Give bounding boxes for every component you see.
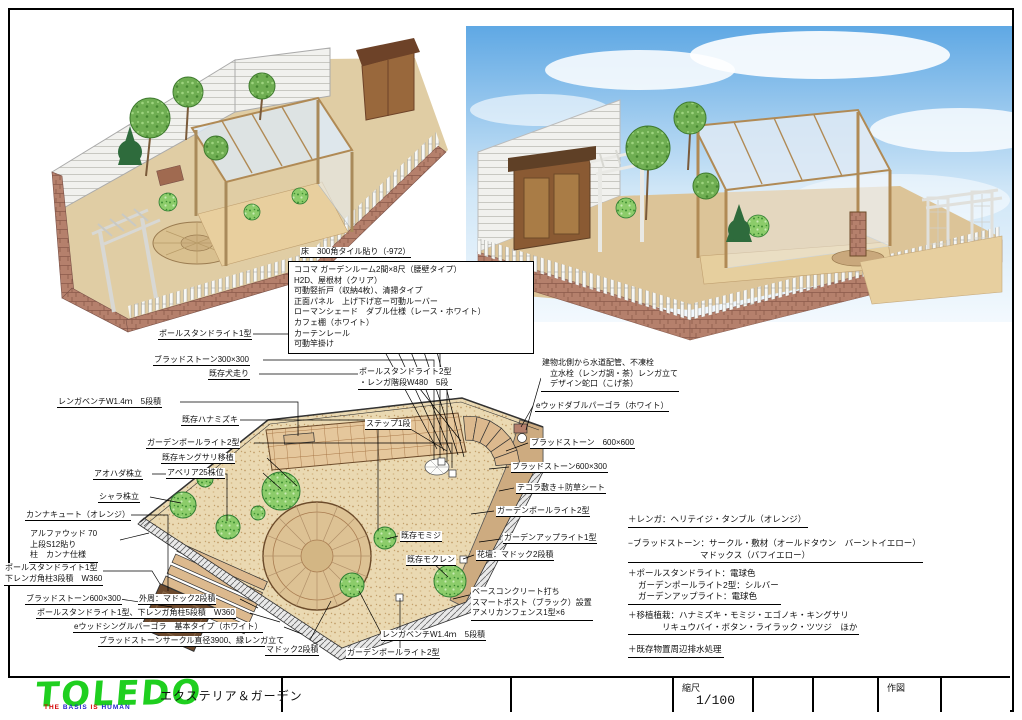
annotation-line: 立水栓（レンガ調・茶）レンガ立て <box>542 369 678 380</box>
annotation-alpha-wood-fence: アルファウッド 70 上段S12貼り 柱 カンナ仕様 <box>29 529 98 563</box>
annotation-pole-stand-light-2: ポールスタンドライト2型 ・レンガ階段W480 5段 <box>358 367 452 390</box>
annotation-existing-maple: 既存モミジ <box>400 531 442 542</box>
annotation-line: 建物北側から水道配管、不凍栓 <box>542 358 678 369</box>
drawn-by-label: 作図 <box>887 681 905 694</box>
titleblock-divider <box>672 678 674 712</box>
annotation-kanna-cute-shed: カンナキュート（オレンジ） <box>25 510 131 521</box>
titleblock-divider <box>752 678 754 712</box>
annotation-madoc-2dan: マドック2段積 <box>265 645 319 656</box>
tagline-word: THE <box>44 704 60 711</box>
annotation-existing-walkway: 既存犬走り <box>208 369 250 380</box>
annotation-bradstone-600x300-b: ブラッドストーン600×300 <box>511 462 608 473</box>
spec-line: カーテンレール <box>294 329 528 340</box>
annotation-madoc-outer: 外周：マドック2段積 <box>138 594 216 605</box>
annotation-bradstone-600x300-a: ブラッドストーン600×300 <box>25 594 122 605</box>
spec-line: ローマンシェード ダブル仕様（レース・ホワイト） <box>294 307 528 318</box>
spec-line: 正面パネル 上げ下げ窓ー可動ルーバー <box>294 297 528 308</box>
annotation-existing-magnolia: 既存モクレン <box>406 555 456 566</box>
annotation-shara-tree: シャラ株立 <box>98 492 140 503</box>
annotation-garden-pole-light-c: ガーデンポールライト2型 <box>496 506 590 517</box>
annotation-pole-stand-light-1: ポールスタンドライト1型 <box>158 329 252 340</box>
titleblock-divider <box>877 678 879 712</box>
annotation-line: アメリカンフェンス1型×6 <box>472 608 592 619</box>
annotation-bradstone-300: ブラッドストーン300×300 <box>153 355 250 366</box>
scale-value: 1/100 <box>696 693 735 708</box>
annotation-gravel-weed-sheet: テコラ敷き＋防草シート <box>516 483 606 494</box>
note-transplanted-plants: ＋移植植栽：ハナミズキ・モミジ・エゴノキ・キングサリ リキュウバイ・ボタン・ライ… <box>628 610 859 635</box>
annotation-garden-pole-light-a: ガーデンポールライト2型 <box>146 438 240 449</box>
annotation-bradstone-600x600: ブラッドストーン 600×600 <box>530 438 635 449</box>
titleblock-divider <box>510 678 512 712</box>
company-subtitle: エクステリア＆ガーデン <box>160 687 303 704</box>
annotation-pole-stand-light-3dan: ポールスタンドライト1型 下レンガ角柱3段積 W360 <box>4 563 103 586</box>
annotation-brick-bench-bottom: レンガベンチW1.4ｍ 5段積 <box>381 630 486 641</box>
annotation-brick-bench-top: レンガベンチW1.4ｍ 5段積 <box>57 397 162 408</box>
note-line: マドックス（バフイエロー） <box>628 550 921 562</box>
spec-line: ココマ ガーデンルーム2間×8尺（腰壁タイプ） <box>294 265 528 276</box>
annotation-double-pergola: eウッドダブルパーゴラ（ホワイト） <box>535 401 669 412</box>
annotation-pole-stand-light-5dan: ポールスタンドライト1型、下レンガ角柱5段積 W360 <box>36 608 236 619</box>
annotation-garden-up-light: ガーデンアップライト1型 <box>503 533 597 544</box>
spec-line: H2D、屋根材（クリア） <box>294 276 528 287</box>
note-line: ガーデンポールライト2型：シルバー <box>628 580 779 592</box>
annotation-line: ・レンガ階段W480 5段 <box>359 378 451 389</box>
tagline-word: BASIS <box>63 704 88 711</box>
note-line: −ブラッドストーン：サークル・敷材（オールドタウン バーントイエロー） <box>628 538 921 550</box>
spec-line: 可動竿掛け <box>294 339 528 350</box>
note-line: ＋ポールスタンドライト：電球色 <box>628 568 779 580</box>
note-drainage: ＋既存物置周辺排水処理 <box>628 644 724 658</box>
note-line: ガーデンアップライト：電球色 <box>628 591 779 603</box>
annotation-floor-tile: 床 300角タイル貼り（-972） <box>300 247 411 258</box>
titleblock-divider <box>940 678 942 712</box>
note-lighting: ＋ポールスタンドライト：電球色 ガーデンポールライト2型：シルバー ガーデンアッ… <box>628 568 781 605</box>
annotation-water-supply: 建物北側から水道配管、不凍栓 立水栓（レンガ調・茶）レンガ立て デザイン蛇口（こ… <box>541 358 679 392</box>
annotation-aohada-tree: アオハダ株立 <box>93 469 143 480</box>
note-bradstone-colors: −ブラッドストーン：サークル・敷材（オールドタウン バーントイエロー） マドック… <box>628 538 923 563</box>
note-line: ＋移植植栽：ハナミズキ・モミジ・エゴノキ・キングサリ <box>628 610 857 622</box>
spec-line: 可動竪折戸（収納4枚）、清掃タイプ <box>294 286 528 297</box>
annotation-single-pergola: eウッドシングルパーゴラ 基本タイプ（ホワイト） <box>73 622 263 633</box>
title-block: TOLEDO THE BASIS IS HUMAN エクステリア＆ガーデン 縮尺… <box>8 676 1010 712</box>
annotation-line: ベースコンクリート打ち <box>472 587 592 598</box>
annotation-line: スマートポスト（ブラック）設置 <box>472 598 592 609</box>
annotation-line: 柱 カンナ仕様 <box>30 550 97 561</box>
annotation-fence-post: ベースコンクリート打ち スマートポスト（ブラック）設置 アメリカンフェンス1型×… <box>471 587 593 621</box>
tagline-word: HUMAN <box>101 704 130 711</box>
annotation-garden-pole-light-b: ガーデンポールライト2型 <box>346 648 440 659</box>
annotation-line: アルファウッド 70 <box>30 529 97 540</box>
company-tagline: THE BASIS IS HUMAN <box>44 704 131 711</box>
annotation-line: 下レンガ角柱3段積 W360 <box>5 574 102 585</box>
annotation-line: ポールスタンドライト1型 <box>5 563 102 574</box>
garden-room-spec-box: ココマ ガーデンルーム2間×8尺（腰壁タイプ） H2D、屋根材（クリア） 可動竪… <box>288 261 534 354</box>
annotation-existing-dogwood: 既存ハナミズキ <box>181 415 239 426</box>
spec-line: カフェ棚（ホワイト） <box>294 318 528 329</box>
annotation-flowerbed-madoc: 花壇：マドック2段積 <box>476 550 554 561</box>
tagline-word: IS <box>91 704 99 711</box>
drawing-sheet: 床 300角タイル貼り（-972） ココマ ガーデンルーム2間×8尺（腰壁タイプ… <box>0 0 1022 720</box>
annotation-stone-circle-3900: ブラッドストーンサークル直径3900、縁レンガ立て <box>98 636 285 647</box>
annotation-line: デザイン蛇口（こげ茶） <box>542 379 678 390</box>
titleblock-divider <box>812 678 814 712</box>
annotation-laburnum-transplant: 既存キングサリ移植 <box>161 453 235 464</box>
note-brick-heritage: ＋レンガ：ヘリテイジ・タンブル（オレンジ） <box>628 514 808 528</box>
annotation-line: 上段S12貼り <box>30 540 97 551</box>
annotation-line: ポールスタンドライト2型 <box>359 367 451 378</box>
annotation-shrubs-25: アベリア25株位 <box>166 468 225 479</box>
note-line: リキュウバイ・ボタン・ライラック・ツツジ ほか <box>628 622 857 634</box>
annotation-step-1: ステップ1段 <box>365 419 411 430</box>
